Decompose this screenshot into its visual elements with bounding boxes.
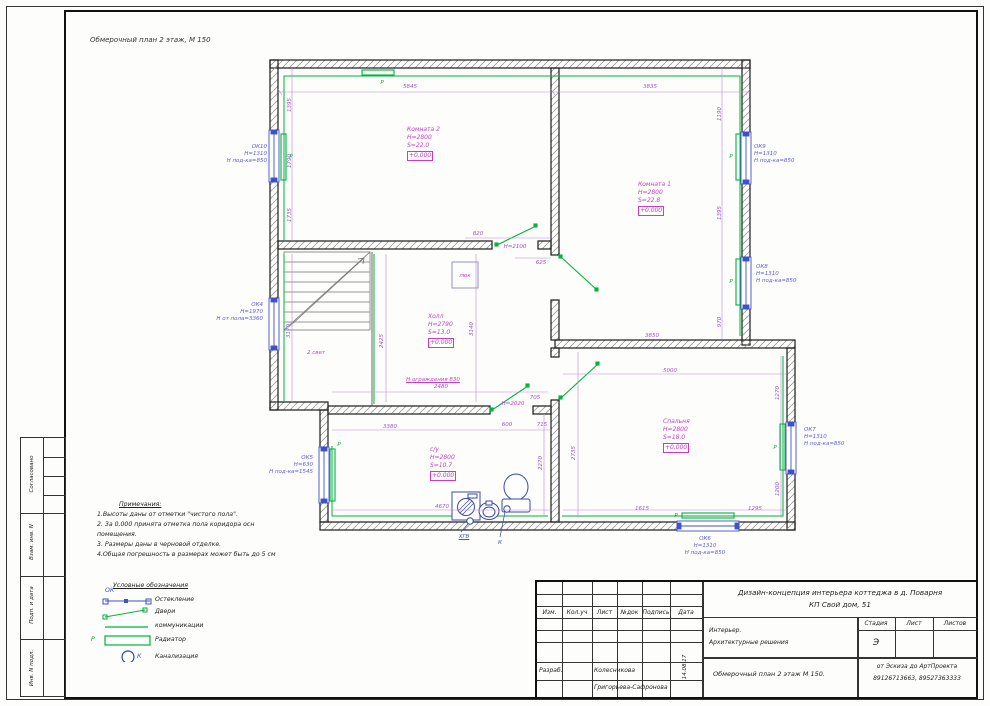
walls	[270, 60, 795, 530]
tb-project-line2: КП Свой дом, 51	[707, 599, 973, 611]
tb-col-date: Дата	[670, 609, 702, 616]
toilet-icon	[504, 474, 528, 500]
legend-row-radiator: Р Радиатор	[95, 634, 285, 648]
title-block: Изм. Кол.уч Лист №док Подпись Дата Разра…	[535, 580, 977, 697]
tb-project-line1: Дизайн-концепция интерьера коттеджа в д.…	[707, 587, 973, 599]
sewer-point-icon	[504, 506, 510, 512]
tb-studio-line1: от Эскиза до АртПроекта	[859, 663, 975, 670]
communication-lines	[284, 76, 783, 516]
room-label-bathroom: с/у Н=2800 S=10.7 +0.000	[430, 446, 456, 481]
tb-studio-line2: 89126713663, 89527363333	[859, 675, 975, 682]
room-label-bedroom: Спальня Н=2800 S=18.0 +0.000	[663, 418, 690, 453]
window-label-ok6: ОК6 Н=1310 Н под-ка=850	[660, 536, 750, 557]
tb-section1: Интерьер.	[709, 627, 741, 634]
tb-col-ndoc: №док	[617, 609, 642, 616]
room-label-komnata2: Комната 2 Н=2800 S=22.0 +0.000	[407, 126, 440, 161]
window-label-ok8: ОК8 Н=1310 Н под-ка=850	[756, 264, 796, 285]
tb-col-koluch: Кол.уч	[562, 609, 592, 616]
legend-block: Условные обозначения ОК Остекление Двери	[95, 582, 285, 666]
staircase	[284, 252, 372, 406]
radiator-symbol-icon	[100, 634, 155, 648]
room-label-hall: Холл Н=2790 S=13.0 +0.000	[428, 313, 454, 348]
tb-listov-label: Листов	[933, 620, 977, 627]
doors	[490, 224, 599, 411]
tb-section2: Архитектурные решения	[709, 639, 788, 646]
notes-block: Примечания: 1.Высоты даны от отметки "чи…	[97, 500, 282, 560]
legend-row-sewer: К Канализация	[95, 648, 285, 666]
room-name: Комната 2	[407, 126, 440, 134]
legend-row-glazing: ОК Остекление	[95, 592, 285, 606]
notes-title: Примечания:	[119, 500, 282, 510]
tb-col-sign: Подпись	[642, 609, 670, 616]
legend-row-doors: Двери	[95, 606, 285, 620]
tb-stage-value: Э	[857, 638, 895, 648]
water-point-icon	[467, 518, 473, 524]
tb-sheet-name: Обмерочный план 2 этаж М 150.	[713, 670, 825, 678]
legend-row-communications: коммуникации	[95, 620, 285, 634]
window-label-ok9: ОК9 Н=1310 Н под-ка=850	[754, 144, 794, 165]
tb-list-label: Лист	[895, 620, 933, 627]
tb-name1: Колесникова	[594, 667, 635, 674]
drawing-sheet: Согласовано Взам. инв. N Подп. и дата Ин…	[0, 0, 990, 706]
radiators	[281, 70, 785, 518]
tb-name2: Григорьева-Сафронова	[594, 684, 668, 691]
window-label-ok7: ОК7 Н=1310 Н под-ка=850	[804, 427, 844, 448]
tb-role-razrab: Разраб.	[539, 667, 563, 674]
sewer-symbol-icon	[100, 648, 155, 662]
radiator-tag: Р	[91, 636, 95, 643]
legend-title: Условные обозначения	[113, 582, 285, 589]
tb-col-list: Лист	[592, 609, 617, 616]
window-label-ok10: ОК10 Н=1310 Н под-ка=850	[227, 144, 267, 165]
room-label-komnata1: Комната 1 Н=2800 S=22.8 +0.000	[638, 181, 671, 216]
dimension-lines	[278, 68, 787, 518]
glazing-symbol-icon	[100, 592, 155, 606]
communications-symbol-icon	[100, 620, 155, 634]
hatch-box	[452, 262, 478, 288]
tb-date-value: 14.08.17	[682, 647, 688, 687]
sewer-tag: К	[137, 653, 141, 660]
windows-symbols	[269, 130, 796, 531]
tb-stage-label: Стадия	[857, 620, 895, 627]
window-label-ok5: ОК5 Н=630 Н под-ка=1545	[269, 455, 313, 476]
window-label-ok4: ОК4 Н=1970 Н от пола=3360	[216, 302, 263, 323]
tb-col-izm: Изм.	[537, 609, 562, 616]
door-symbol-icon	[100, 606, 155, 620]
